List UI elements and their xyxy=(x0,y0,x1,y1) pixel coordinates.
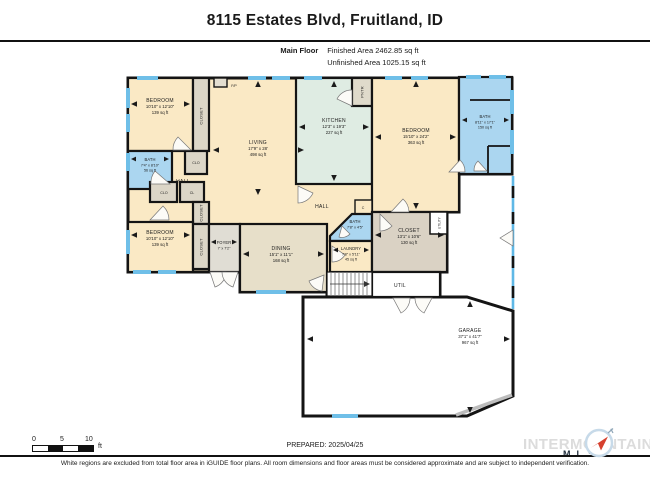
closet-label: CLOSET xyxy=(199,238,204,256)
c-label: C xyxy=(362,206,365,210)
floor-label: Main Floor xyxy=(280,45,318,57)
fireplace xyxy=(214,78,227,87)
room-garage xyxy=(303,297,513,416)
util-label: UTIL xyxy=(394,283,406,289)
room-area: 363 sq ft xyxy=(408,140,425,145)
window-marker xyxy=(411,76,428,80)
room-dims: 13'1" x 10'6" xyxy=(397,234,421,239)
floorplan-page: 8115 Estates Blvd, Fruitland, ID Main Fl… xyxy=(0,0,650,502)
label-living: LIVING 17'9" x 28' 498 sq ft xyxy=(248,140,268,157)
window-marker xyxy=(248,76,266,80)
room-area: 139 sq ft xyxy=(152,110,169,115)
patio-line-dash xyxy=(512,256,515,268)
compass-icon xyxy=(584,427,615,458)
clo-label: CLO xyxy=(160,191,168,195)
room-name: LAUNDRY xyxy=(341,246,361,251)
door-swing xyxy=(500,230,513,246)
floor-plan: BEDROOM 10'10" x 12'10" 139 sq ft LIVING… xyxy=(0,70,650,434)
room-area: 56 sq ft xyxy=(144,169,156,173)
room-dims: 7'8" x 4'5" xyxy=(347,225,364,229)
page-title: 8115 Estates Blvd, Fruitland, ID xyxy=(0,12,650,30)
cl-label: CL xyxy=(190,191,195,195)
room-dims: 37'1" x 41'7" xyxy=(458,334,482,339)
room-name: CLOSET xyxy=(398,228,420,234)
window-marker xyxy=(272,76,290,80)
window-marker xyxy=(332,414,358,418)
disclaimer-text: White regions are excluded from total fl… xyxy=(0,460,650,467)
room-dims: 7'4" x 8'10" xyxy=(141,163,160,167)
room-name: BEDROOM xyxy=(146,230,174,236)
window-marker xyxy=(510,130,514,154)
unfinished-area: Unfinished Area 1025.15 sq ft xyxy=(327,57,425,69)
window-marker xyxy=(489,75,506,79)
closet-label: CLOSET xyxy=(199,204,204,222)
room-name: BATH xyxy=(144,157,155,162)
utility-label: UTILITY xyxy=(438,216,442,229)
header-divider xyxy=(0,40,650,42)
compass-icon-svg xyxy=(584,427,615,458)
clo-label: CLO xyxy=(192,161,200,165)
room-area: 139 sq ft xyxy=(152,242,169,247)
window-marker xyxy=(133,270,151,274)
patio-line-dash xyxy=(512,286,515,298)
room-area: 967 sq ft xyxy=(462,340,479,345)
room-dims: 17'9" x 28' xyxy=(248,146,268,151)
room-name: LIVING xyxy=(249,140,267,146)
door-swing xyxy=(222,272,238,287)
window-marker xyxy=(510,90,514,114)
room-dims: 7' x 7'2" xyxy=(218,246,231,250)
room-area: 150 sq ft xyxy=(478,126,492,130)
room-name: DINING xyxy=(272,246,291,252)
fireplace-label: F/P xyxy=(231,84,237,88)
window-marker xyxy=(126,114,130,132)
room-area: 45 sq ft xyxy=(345,258,357,262)
finished-area: Finished Area 2462.85 sq ft xyxy=(327,45,425,57)
room-name: GARAGE xyxy=(459,328,482,334)
hall-label: HALL xyxy=(176,179,190,185)
patio-line-dash xyxy=(512,212,515,224)
footer-divider xyxy=(0,455,650,457)
window-marker xyxy=(126,153,130,171)
area-summary: Finished Area 2462.85 sq ft Unfinished A… xyxy=(327,45,425,69)
room-name: BATH xyxy=(349,219,360,224)
window-marker xyxy=(466,75,481,79)
room-name: BEDROOM xyxy=(146,98,174,104)
window-marker xyxy=(126,230,130,254)
room-name: BEDROOM xyxy=(402,128,430,134)
patio-line-dash xyxy=(512,186,515,198)
window-marker xyxy=(137,76,158,80)
compass-north-mark xyxy=(608,429,613,434)
room-name: KITCHEN xyxy=(322,118,346,124)
room-name: BATH xyxy=(479,114,490,119)
room-name: FOYER xyxy=(217,240,232,245)
room-dims: 10'10" x 12'10" xyxy=(146,236,175,241)
window-marker xyxy=(126,88,130,108)
room-area: 130 sq ft xyxy=(401,240,418,245)
room-dims: 10'10" x 12'10" xyxy=(146,104,175,109)
floor-summary: Main Floor Finished Area 2462.85 sq ft U… xyxy=(0,45,650,69)
room-dims: 15'10" x 24'2" xyxy=(403,134,429,139)
window-marker xyxy=(256,290,286,294)
room-area: 498 sq ft xyxy=(250,152,267,157)
window-marker xyxy=(385,76,402,80)
window-marker xyxy=(158,270,176,274)
room-dims: 12'3" x 19'3" xyxy=(322,124,346,129)
room-dims: 7'8" x 5'11" xyxy=(342,252,361,256)
hall-label: HALL xyxy=(315,204,329,210)
closet-label: CLOSET xyxy=(199,107,204,125)
room-dims: 15'1" x 11'1" xyxy=(269,252,293,257)
floor-plan-svg: BEDROOM 10'10" x 12'10" 139 sq ft LIVING… xyxy=(0,70,650,434)
pantry-label: PNTR xyxy=(360,86,365,98)
room-area: 227 sq ft xyxy=(326,130,343,135)
room-dims: 8'11" x 17'1" xyxy=(475,120,496,124)
window-marker xyxy=(304,76,322,80)
room-area: 168 sq ft xyxy=(273,258,290,263)
